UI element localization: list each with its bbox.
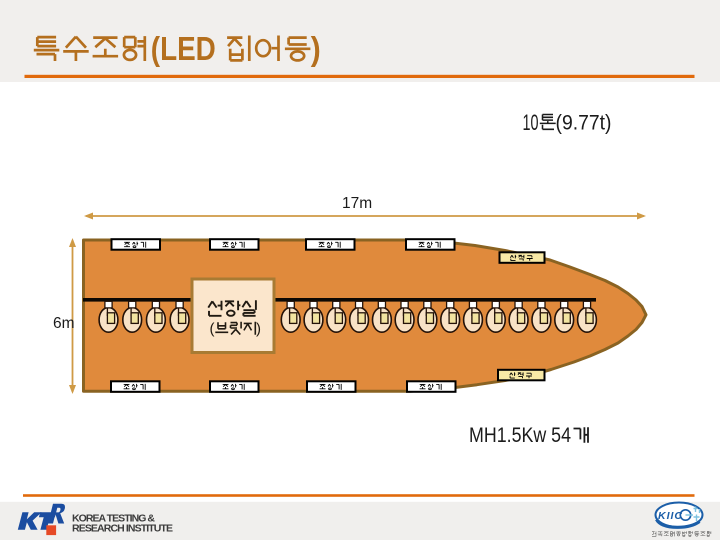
svg-text:(LED: (LED bbox=[151, 30, 216, 67]
svg-text:KIIC: KIIC bbox=[658, 510, 682, 522]
svg-text:10: 10 bbox=[523, 110, 539, 135]
svg-text:(9.77t): (9.77t) bbox=[556, 111, 612, 135]
svg-text:(: ( bbox=[210, 321, 215, 338]
svg-text:): ) bbox=[311, 30, 321, 67]
svg-text:17m: 17m bbox=[342, 195, 372, 212]
svg-text:RESEARCH INSTITUTE: RESEARCH INSTITUTE bbox=[72, 523, 173, 535]
svg-text:6m: 6m bbox=[53, 315, 75, 332]
svg-text:MH1.5Kw 54: MH1.5Kw 54 bbox=[469, 424, 571, 447]
svg-text:): ) bbox=[256, 321, 261, 338]
